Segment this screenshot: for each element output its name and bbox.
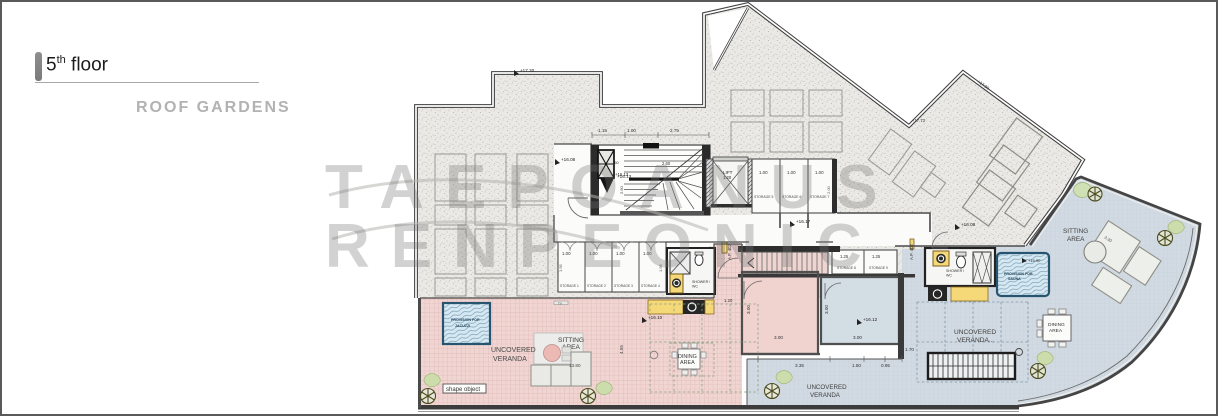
svg-text:WC: WC <box>692 285 698 289</box>
svg-text:+17.20: +17.20 <box>520 68 535 73</box>
svg-text:1.20: 1.20 <box>724 298 733 303</box>
svg-text:+15.90: +15.90 <box>1028 258 1041 263</box>
svg-text:+16.08: +16.08 <box>961 222 976 227</box>
svg-text:1.70: 1.70 <box>905 347 914 352</box>
svg-text:VERANDA...: VERANDA... <box>957 337 995 344</box>
svg-text:STORAGE 4: STORAGE 4 <box>641 284 660 288</box>
svg-text:STORAGE 1: STORAGE 1 <box>560 284 579 288</box>
svg-text:PROVISION FOR: PROVISION FOR <box>1004 272 1033 276</box>
svg-text:SHOWER /: SHOWER / <box>946 269 964 273</box>
svg-text:AREA: AREA <box>1067 236 1085 243</box>
svg-text:STORAGE 3: STORAGE 3 <box>614 284 633 288</box>
svg-text:TV: TV <box>558 301 562 305</box>
svg-text:AREA: AREA <box>680 360 695 366</box>
svg-text:SITTING: SITTING <box>558 337 584 344</box>
svg-text:WC: WC <box>946 274 952 278</box>
svg-text:VERANDA: VERANDA <box>810 392 841 399</box>
svg-text:+17.73: +17.73 <box>912 118 926 123</box>
svg-text:SAUNA: SAUNA <box>1008 277 1021 281</box>
svg-text:3.00: 3.00 <box>774 335 783 340</box>
svg-text:1.00: 1.00 <box>627 128 636 133</box>
svg-text:2.75: 2.75 <box>670 128 679 133</box>
svg-text:+16.12: +16.12 <box>863 317 878 322</box>
svg-text:UNCOVERED: UNCOVERED <box>954 329 996 336</box>
svg-text:AREA: AREA <box>1049 328 1063 334</box>
svg-text:PROVISION FOR: PROVISION FOR <box>451 318 480 322</box>
svg-text:UNCOVERED: UNCOVERED <box>491 347 536 354</box>
svg-text:A.P. 402: A.P. 402 <box>909 243 914 260</box>
svg-text:3.00: 3.00 <box>853 335 862 340</box>
svg-text:13.80: 13.80 <box>569 363 581 368</box>
svg-text:shape object: shape object <box>446 387 480 393</box>
svg-text:VERANDA: VERANDA <box>493 356 527 363</box>
svg-text:3.00: 3.00 <box>824 305 829 314</box>
svg-text:3.16: 3.16 <box>897 311 902 320</box>
svg-text:3.35: 3.35 <box>795 363 804 368</box>
svg-text:DINING: DINING <box>1048 322 1065 328</box>
svg-text:3.00: 3.00 <box>746 305 751 314</box>
svg-text:SITTING: SITTING <box>1063 228 1088 235</box>
svg-text:0.95: 0.95 <box>881 363 890 368</box>
svg-text:UNCOVERED: UNCOVERED <box>807 384 847 391</box>
svg-text:STORAGE 2: STORAGE 2 <box>587 284 606 288</box>
svg-text:+16.10: +16.10 <box>648 315 663 320</box>
svg-text:1.15: 1.15 <box>598 128 607 133</box>
svg-text:1.50: 1.50 <box>852 363 861 368</box>
svg-text:4.55: 4.55 <box>619 345 624 354</box>
svg-text:JACUZZI: JACUZZI <box>455 324 470 328</box>
